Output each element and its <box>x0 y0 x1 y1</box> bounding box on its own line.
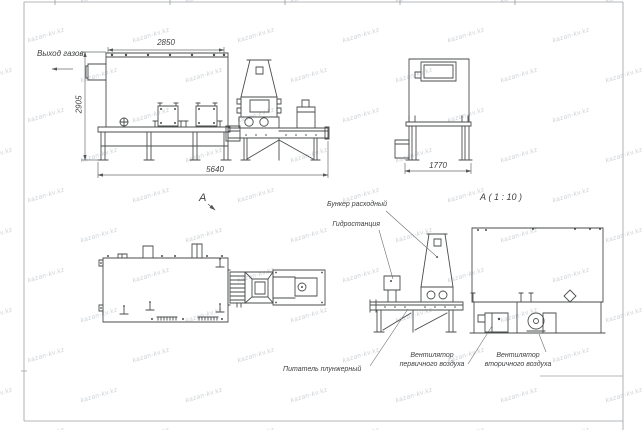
dim-1770: 1770 <box>408 161 468 170</box>
dim-2905: 2905 <box>75 87 84 123</box>
fan-primary-line1: Вентилятор <box>410 352 453 359</box>
fan-secondary-annotation: Вентилятор вторичного воздуха <box>478 352 558 369</box>
fan-primary-line2: первичного воздуха <box>400 361 465 368</box>
fan-secondary-line2: вторичного воздуха <box>485 361 552 368</box>
fan-primary-annotation: Вентилятор первичного воздуха <box>392 352 472 369</box>
drawing-sheet: kazan-kv.kzkazan-kv.kzkazan-kv.kzkazan-k… <box>0 0 644 430</box>
feeder-annotation: Питатель плунжерный <box>283 366 361 375</box>
hydro-annotation: Гидростанция <box>320 221 380 230</box>
detail-view-title: А ( 1 : 10 ) <box>460 192 542 202</box>
hopper-annotation: Бункер расходный <box>313 201 387 210</box>
plan-view-label: А <box>199 192 206 204</box>
dim-5640: 5640 <box>185 165 245 174</box>
gas-outlet-label: Выход газов <box>37 50 84 59</box>
dim-2850: 2850 <box>136 38 196 47</box>
fan-secondary-line1: Вентилятор <box>496 352 539 359</box>
